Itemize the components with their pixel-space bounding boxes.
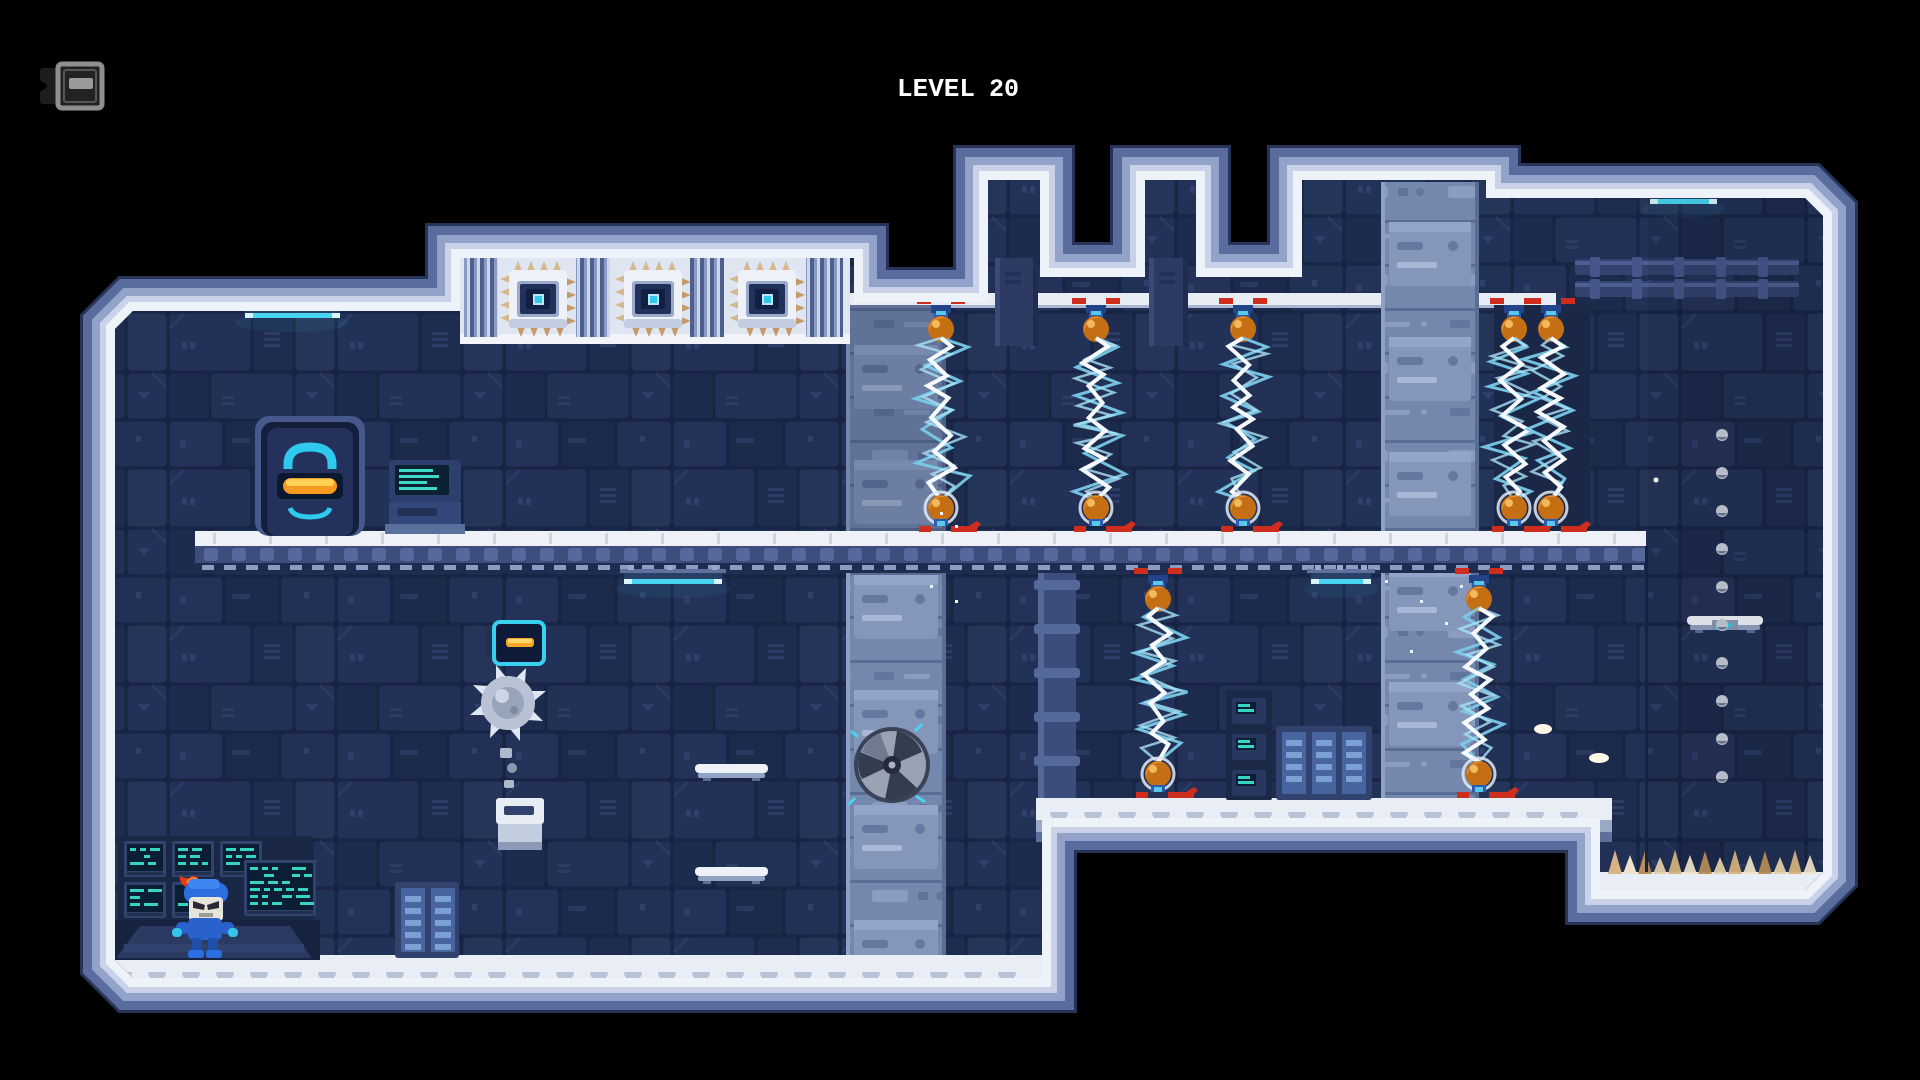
svg-text:LEVEL: LEVEL <box>897 74 975 104</box>
svg-text:20: 20 <box>989 75 1019 104</box>
